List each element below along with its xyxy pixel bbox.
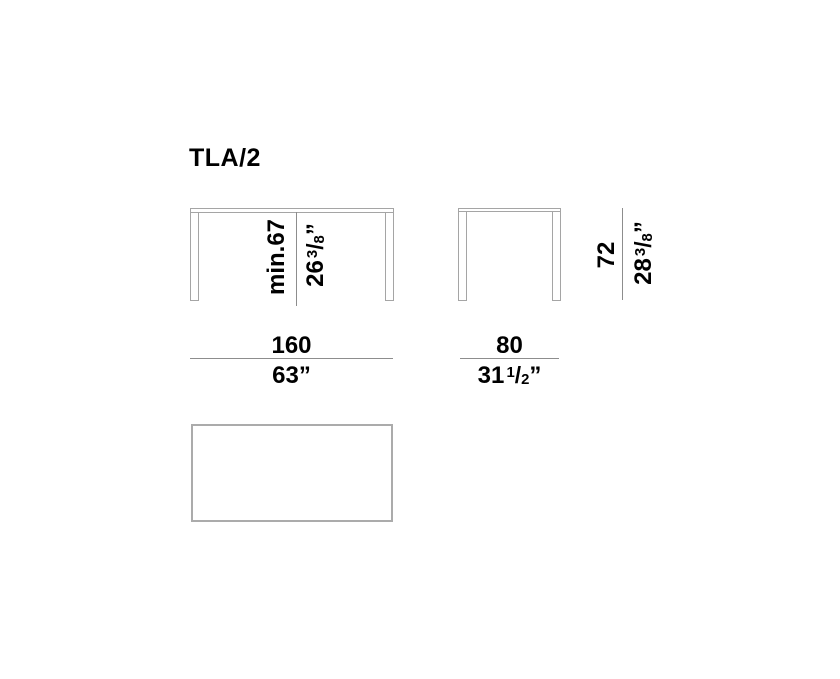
side-width-imperial: 311/2” — [460, 364, 559, 388]
side-view-height-dimension-line — [622, 208, 623, 300]
front-width-metric: 160 — [190, 334, 393, 358]
imperial-numerator: 3 — [633, 248, 649, 256]
front-view-height-imperial: 263/8” — [304, 223, 328, 287]
front-width-imperial: 63” — [190, 364, 393, 388]
imperial-numerator: 1 — [506, 365, 514, 381]
top-view-outline — [191, 424, 393, 522]
page-title: TLA/2 — [189, 144, 261, 173]
front-view-tabletop — [190, 208, 394, 213]
side-view-left-leg — [458, 211, 467, 301]
side-width-metric: 80 — [460, 334, 559, 358]
inch-mark: ” — [302, 223, 329, 235]
side-view-height-imperial: 283/8” — [632, 221, 656, 285]
front-width-dimension-line — [190, 358, 393, 359]
front-view-height-metric: min.67 — [265, 219, 289, 295]
imperial-slash: / — [302, 243, 328, 249]
side-view-tabletop — [458, 208, 561, 212]
dimension-drawing-page: TLA/2 min.67 263/8” 72 283/8” 160 63” 80… — [0, 0, 840, 679]
imperial-denominator: 8 — [312, 235, 328, 243]
imperial-whole: 63 — [272, 362, 299, 389]
front-view-left-leg — [190, 212, 199, 301]
inch-mark: ” — [529, 362, 541, 389]
inch-mark: ” — [299, 362, 311, 389]
side-view-height-metric: 72 — [595, 242, 619, 269]
imperial-numerator: 3 — [305, 250, 321, 258]
inch-mark: ” — [630, 221, 657, 233]
imperial-whole: 28 — [630, 258, 657, 285]
front-view-height-dimension-line — [296, 212, 297, 306]
front-view-right-leg — [385, 212, 394, 301]
imperial-slash: / — [630, 241, 656, 247]
imperial-whole: 31 — [478, 362, 505, 389]
imperial-whole: 26 — [302, 260, 329, 287]
side-view-right-leg — [552, 211, 561, 301]
side-width-dimension-line — [460, 358, 559, 359]
imperial-denominator: 8 — [640, 233, 656, 241]
